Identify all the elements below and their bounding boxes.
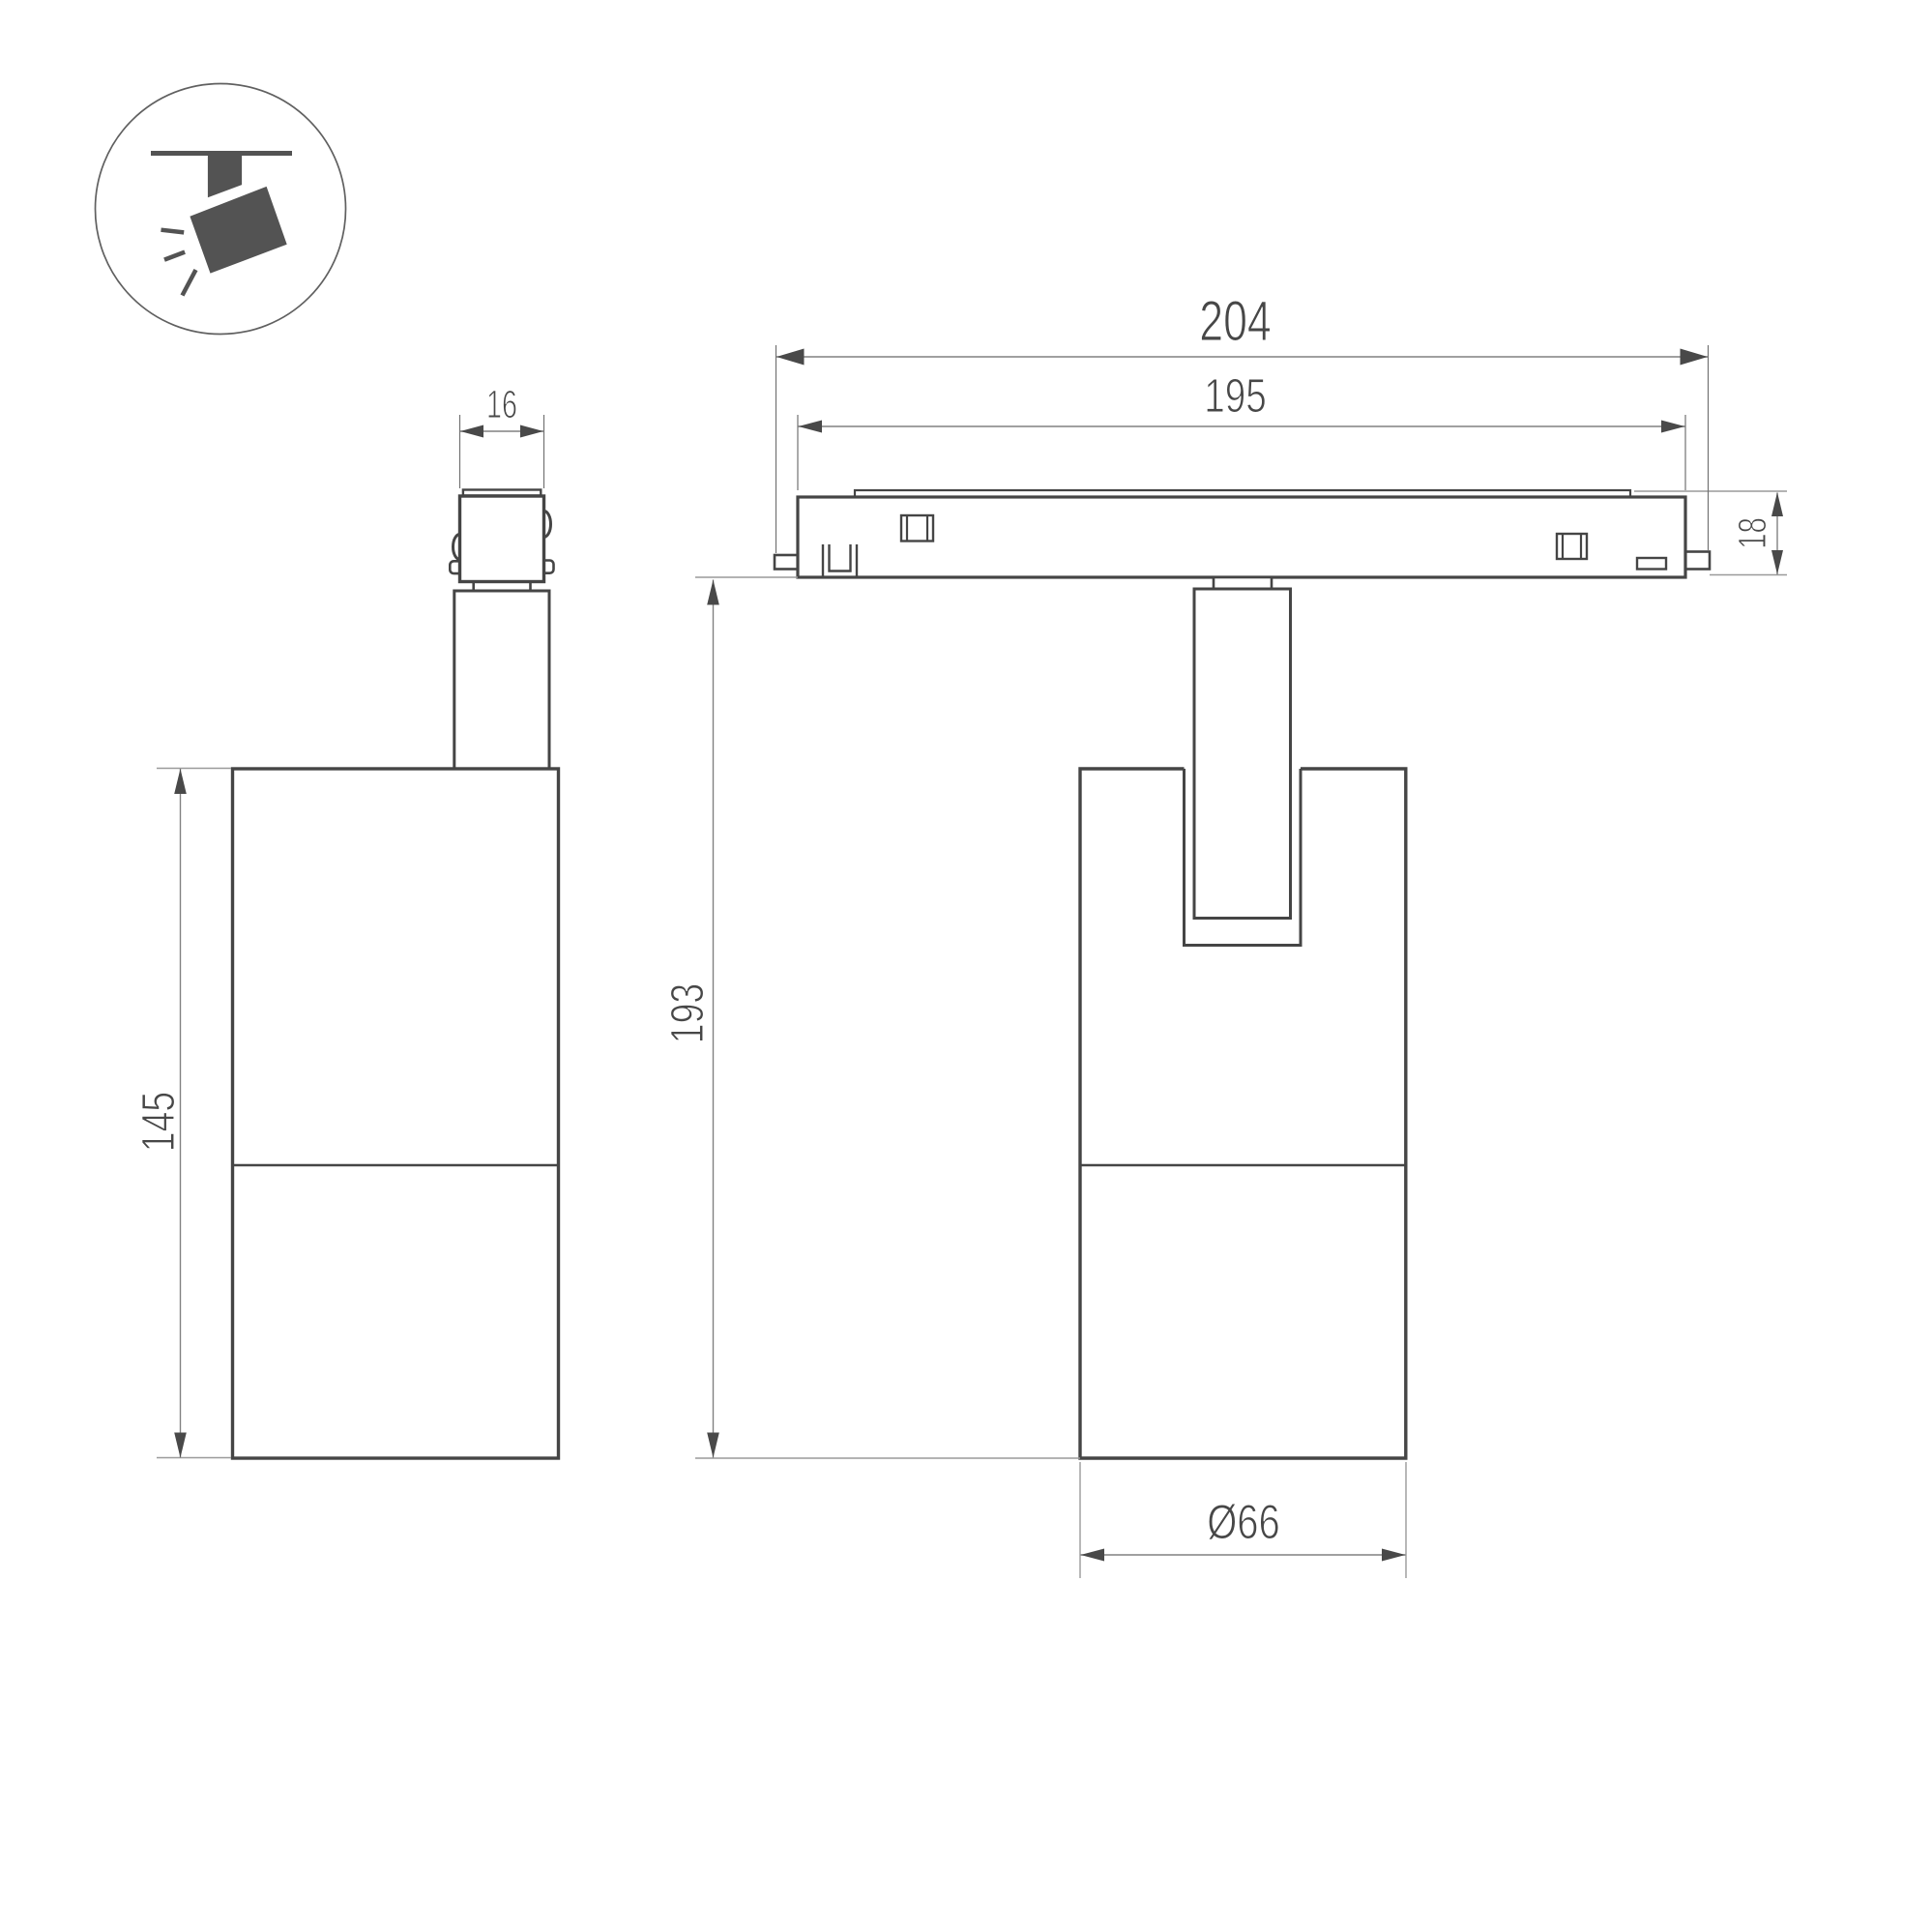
svg-text:16: 16 [486, 383, 517, 426]
svg-text:18: 18 [1730, 517, 1774, 549]
svg-text:195: 195 [1204, 370, 1267, 423]
svg-text:145: 145 [133, 1092, 186, 1152]
svg-text:204: 204 [1199, 289, 1271, 352]
svg-text:Ø66: Ø66 [1207, 1495, 1280, 1549]
svg-text:193: 193 [662, 983, 715, 1043]
